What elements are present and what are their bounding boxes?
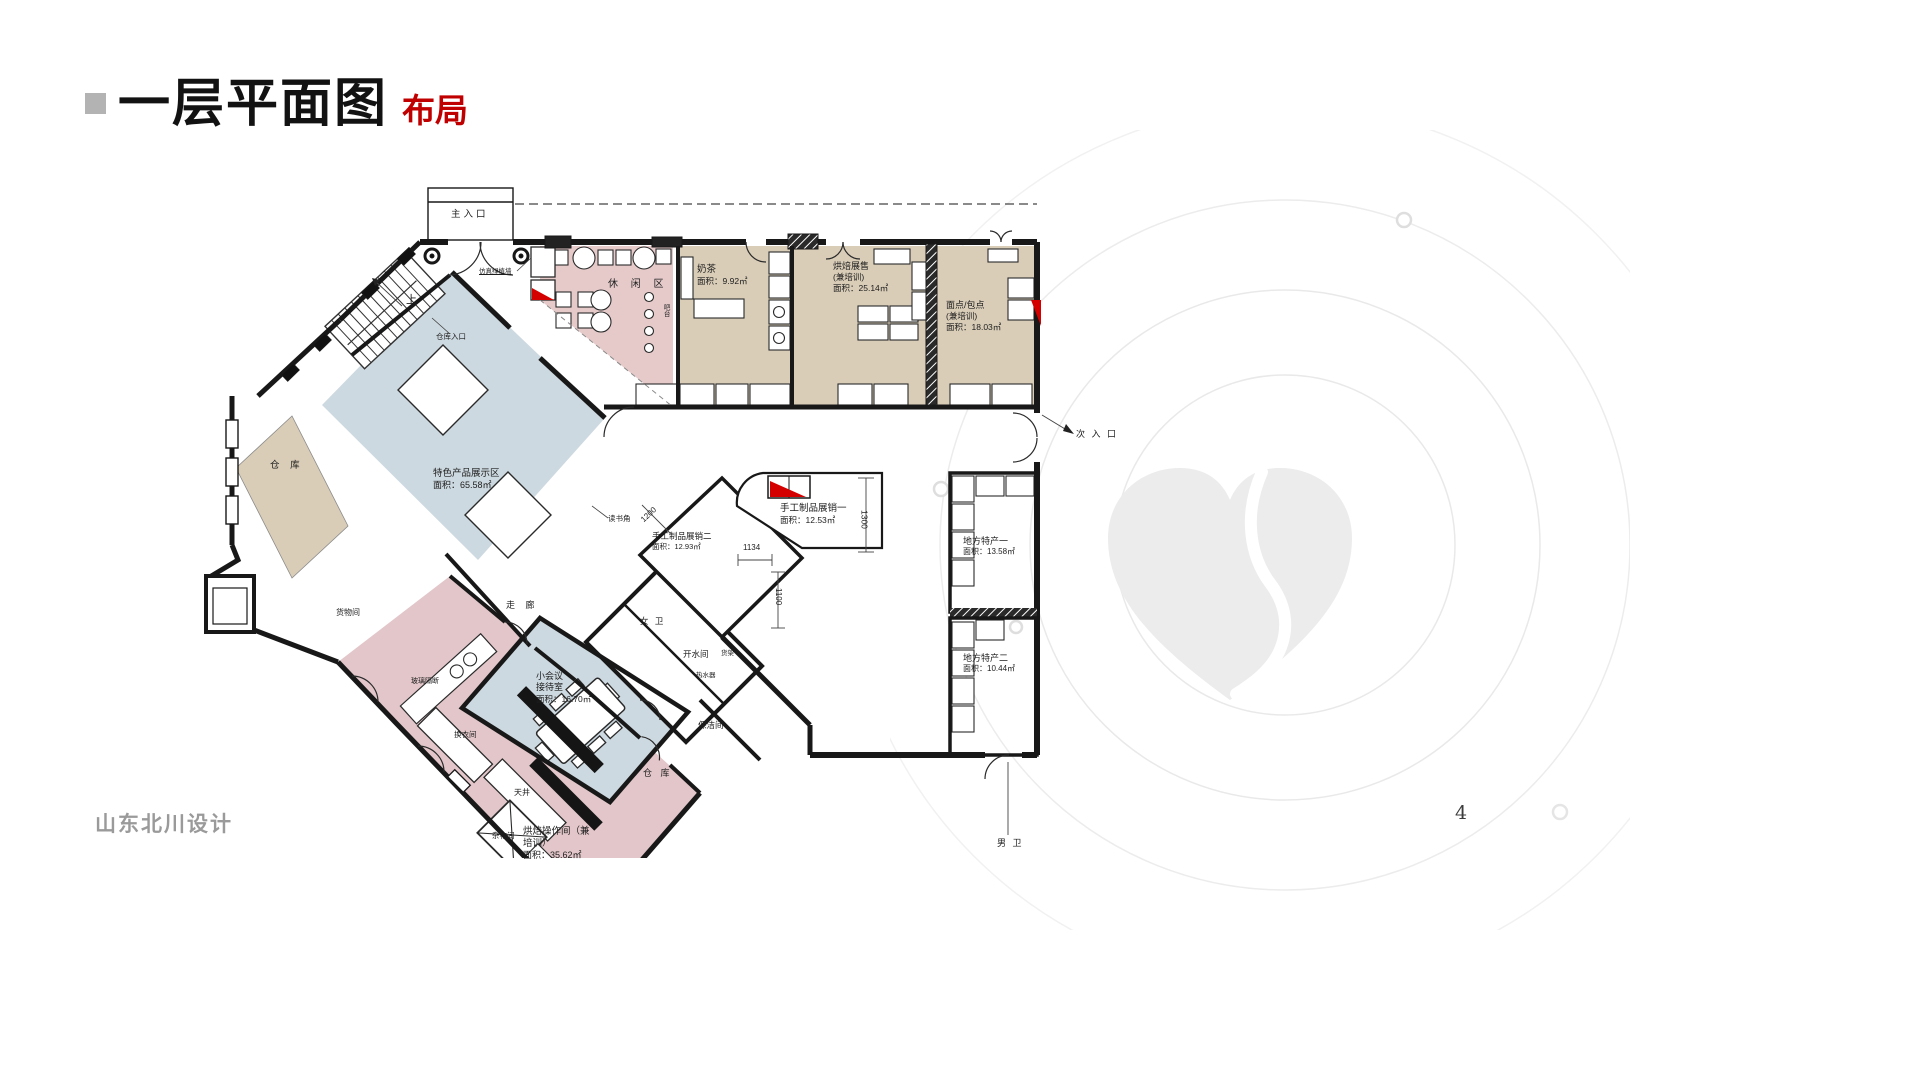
label-handicraft-1: 手工制品展销一 面积：12.53㎡ (780, 503, 847, 526)
label-reading-corner: 读书角 (608, 514, 631, 523)
title-block: 一层平面图 布局 (85, 78, 468, 130)
label-hot-water: 开水间 (683, 649, 709, 660)
label-glass-partition: 玻璃隔断 (411, 678, 439, 687)
company-name: 山东北川设计 (95, 808, 233, 838)
label-womens-wc: 女 卫 (640, 616, 665, 627)
label-warehouse-mid: 仓 库 (643, 768, 673, 779)
label-cleaning-room: 保洁间 (698, 720, 724, 731)
label-baking-display: 烘焙展售 (兼培训) 面积：25.14㎡ (833, 261, 888, 294)
label-featured-display: 特色产品展示区 面积：65.58㎡ (433, 468, 500, 491)
label-warehouse-entry: 仓库入口 (436, 332, 466, 341)
slide: 一层平面图 布局 (0, 0, 1920, 1080)
label-baking-workshop: 烘焙操作间（兼 培训） 面积：35.62㎡ (523, 826, 590, 861)
page-title: 一层平面图 (118, 78, 388, 130)
label-handicraft-2: 手工制品展销二 面积：12.93㎡ (652, 531, 712, 551)
label-local-specialty-1: 地方特产一 面积：13.58㎡ (963, 536, 1015, 557)
label-green-wall: 仿真绿植墙 (479, 268, 512, 276)
label-pastry: 面点/包点 (兼培训) 面积：18.03㎡ (946, 300, 1001, 333)
label-local-specialty-2: 地方特产二 面积：10.44㎡ (963, 653, 1015, 674)
label-goods-room: 货物间 (336, 608, 360, 618)
label-changing-room: 换衣间 (454, 730, 477, 739)
label-shelf: 货架 (721, 650, 734, 658)
label-water-heater: 热水器 (696, 672, 716, 680)
label-corridor: 走 廊 (506, 600, 539, 611)
label-secondary-entrance: 次 入 口 (1076, 429, 1118, 440)
label-bar-counter: 吧台 (661, 304, 669, 317)
label-dim-1100: 1100 (773, 588, 783, 605)
label-mens-wc: 男 卫 (997, 838, 1024, 849)
ring-node (1553, 805, 1567, 819)
page-subtitle: 布局 (402, 94, 468, 127)
label-sundry-room: 杂物间 (492, 831, 515, 840)
floor-plan: 主入口 上 仓库入口 仿真绿植墙 休 闲 区 吧台 奶茶 面积：9.92㎡ 烘焙… (200, 148, 1140, 858)
label-leisure-zone: 休 闲 区 (608, 279, 669, 292)
heart-logo (1108, 468, 1352, 700)
ring-node (1397, 213, 1411, 227)
label-courtyard: 天井 (514, 788, 530, 798)
title-bullet-icon (85, 93, 106, 114)
label-dim-1134: 1134 (743, 543, 760, 553)
page-number: 4 (1455, 802, 1467, 824)
label-main-entrance: 主入口 (451, 209, 489, 221)
floor-plan-drawing (200, 148, 1140, 858)
label-warehouse-left: 仓 库 (270, 460, 304, 472)
label-dim-1300: 1300 (859, 510, 870, 529)
label-stair-up: 上 (406, 294, 417, 308)
label-milk-tea: 奶茶 面积：9.92㎡ (697, 264, 748, 287)
label-meeting-room: 小会议 接待室 面积：16.70㎡ (536, 671, 591, 704)
